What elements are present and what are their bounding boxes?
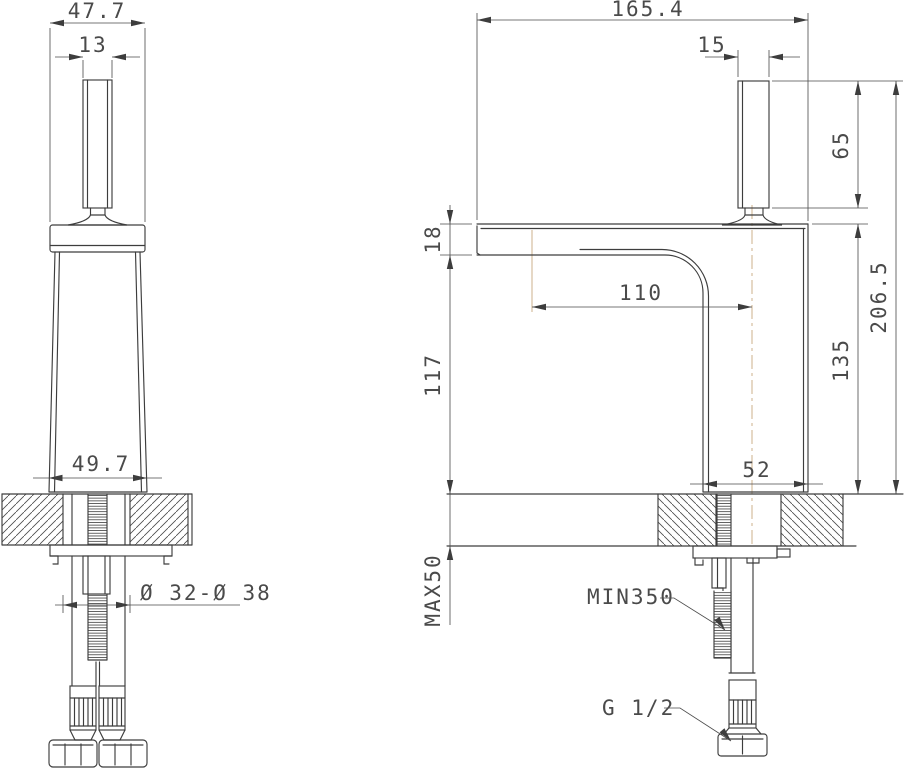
dim-cap-width: 47.7 xyxy=(68,0,127,23)
hose-connector-side xyxy=(718,680,767,756)
side-view: 165.4 15 65 206.5 18 110 117 135 52 MAX5… xyxy=(421,0,903,756)
dim-handle-thickness: 15 xyxy=(697,33,726,57)
dim-overall-depth: 165.4 xyxy=(611,0,684,21)
dim-thread-size: G 1/2 xyxy=(602,696,675,720)
dim-max-counter-thickness: MAX50 xyxy=(421,553,445,626)
dim-handle-height: 65 xyxy=(829,130,853,159)
drawing-sheet: 47.7 13 49.7 Ø 32-Ø 38 xyxy=(0,0,904,768)
dim-hole-diameter: Ø 32-Ø 38 xyxy=(140,581,272,605)
dim-spout-clearance: 117 xyxy=(421,353,445,397)
dim-body-height: 135 xyxy=(829,338,853,382)
dim-base-width: 49.7 xyxy=(72,452,131,476)
handle-side xyxy=(722,81,782,225)
handle-front xyxy=(68,80,127,225)
technical-drawing: 47.7 13 49.7 Ø 32-Ø 38 xyxy=(0,0,904,768)
dim-min-hose-length: MIN350 xyxy=(587,585,675,609)
spout-body-side xyxy=(477,224,808,492)
countertop-side xyxy=(447,494,903,546)
dim-handle-width: 13 xyxy=(78,33,107,57)
supply-hoses-front xyxy=(49,556,147,767)
dim-overall-height: 206.5 xyxy=(867,260,891,333)
dim-spout-reach: 110 xyxy=(619,281,663,305)
dim-body-depth: 52 xyxy=(742,458,771,482)
dim-spout-thickness: 18 xyxy=(421,224,445,253)
front-view: 47.7 13 49.7 Ø 32-Ø 38 xyxy=(2,0,272,767)
